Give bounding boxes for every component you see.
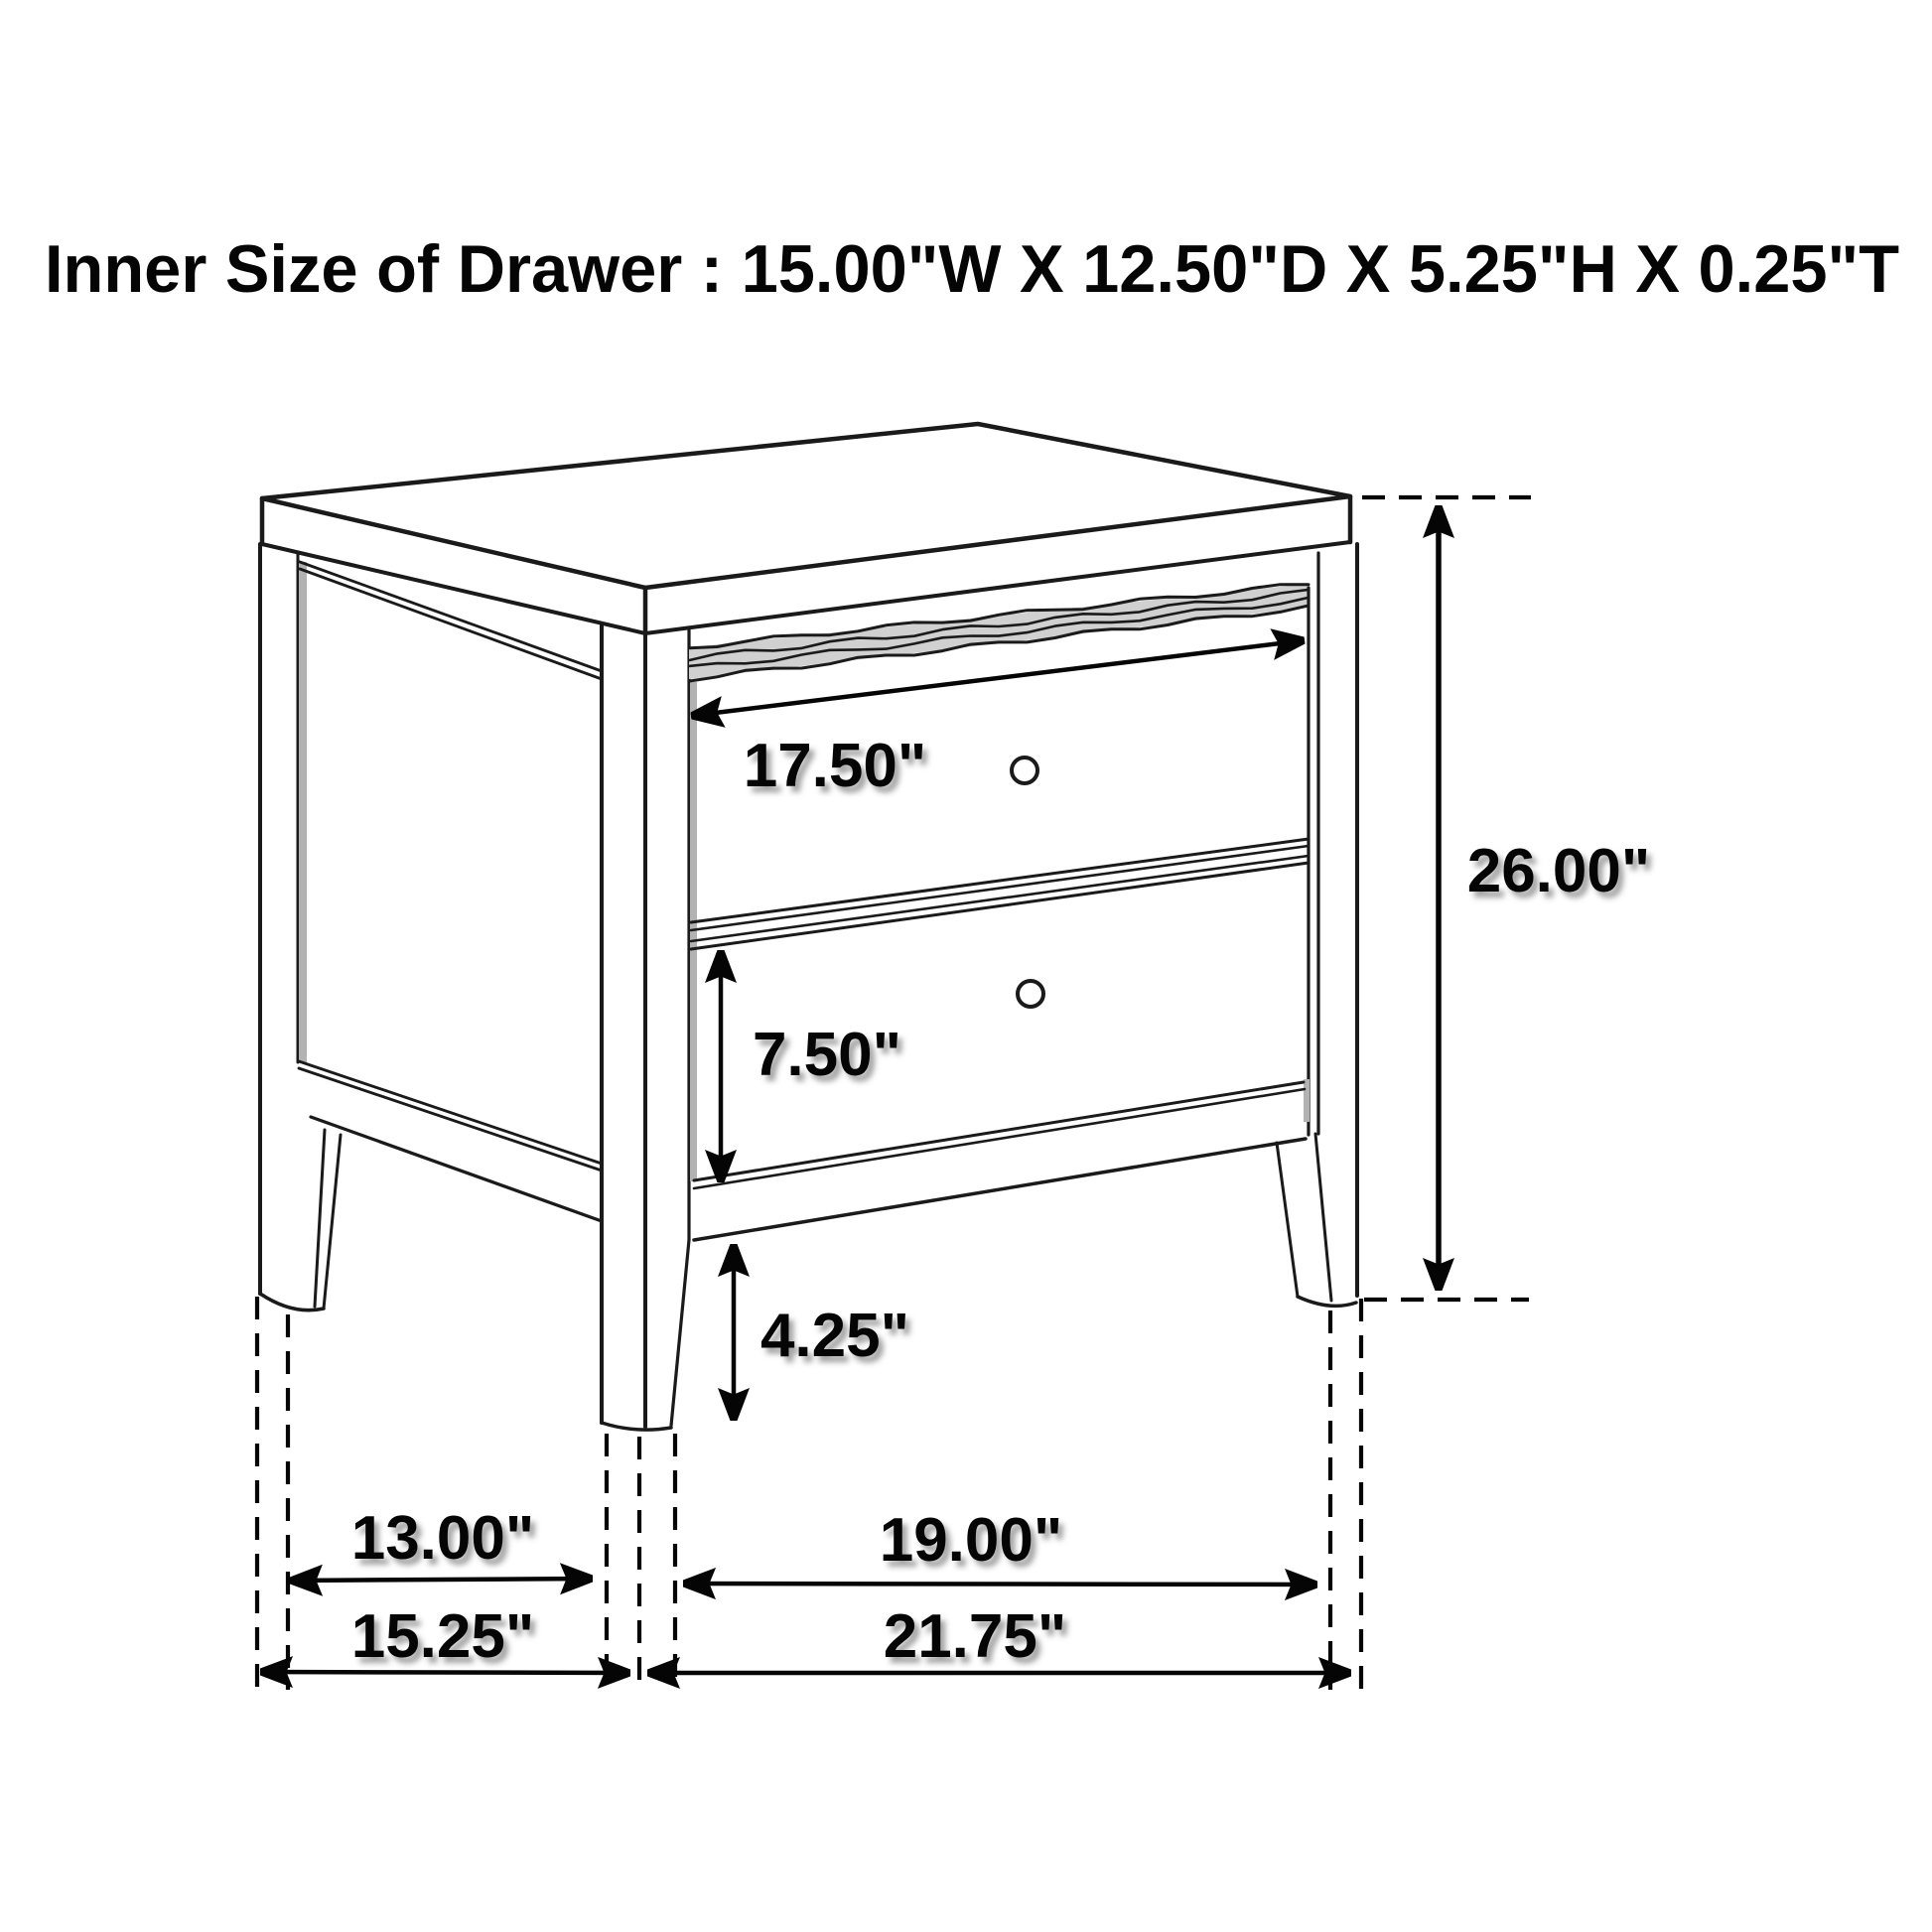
svg-text:15.25": 15.25" — [351, 1602, 535, 1671]
svg-text:Inner Size of Drawer : 15.00"W: Inner Size of Drawer : 15.00"W X 12.50"D… — [45, 231, 1899, 307]
svg-text:26.00": 26.00" — [1467, 837, 1651, 905]
svg-text:19.00": 19.00" — [880, 1506, 1063, 1575]
svg-text:17.50": 17.50" — [744, 732, 927, 800]
svg-text:13.00": 13.00" — [351, 1504, 535, 1573]
svg-text:21.75": 21.75" — [884, 1602, 1067, 1671]
svg-text:4.25": 4.25" — [760, 1302, 909, 1370]
svg-text:7.50": 7.50" — [753, 1021, 901, 1089]
